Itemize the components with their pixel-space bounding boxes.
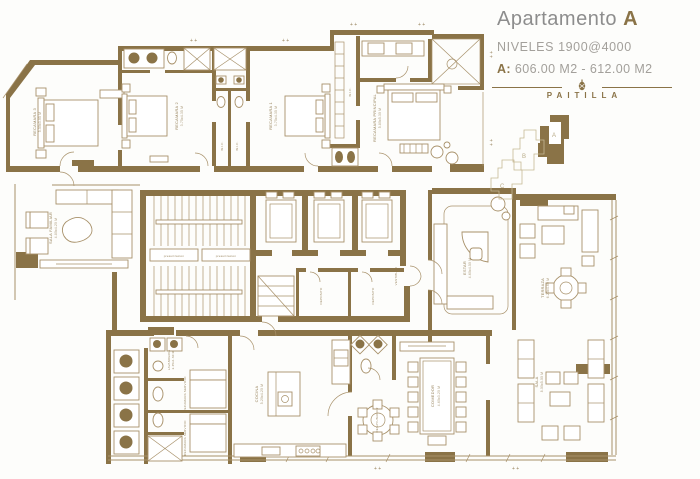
master-label: RECAMARA PRINCIPAL — [372, 93, 377, 142]
area-line: A: 606.00 M2 - 612.00 M2 — [497, 62, 693, 76]
presurizacion-label-2: presurizacion — [216, 254, 237, 258]
laundry-dims: 2.45x1.60 M — [171, 350, 175, 369]
elevator-2 — [314, 192, 344, 242]
area-label: A: — [497, 62, 511, 76]
bedroom-1: RECAMARA 1 3.75x4.35 M — [268, 84, 330, 166]
dim-marker: + + — [512, 466, 519, 472]
apartment-title: Apartamento A — [497, 8, 693, 31]
terrace-dims: 6.20x4.60 M — [546, 278, 550, 298]
brand-block: PAITILLA — [492, 78, 672, 100]
service-area: LAVANDERIA 2.45x1.60 M RECAMARA SERVICIO… — [114, 336, 226, 461]
elevator-lobby: DEPOSITO DEPOSITO VESTIBULO — [258, 266, 421, 316]
keyplan-a-label: A — [552, 133, 556, 139]
dim-marker: + + — [12, 85, 18, 92]
keyplan-b-label: B — [522, 154, 526, 160]
keyplan: A B C — [491, 115, 569, 199]
deposito-2-label: DEPOSITO — [371, 287, 375, 305]
bedroom-2: RECAMARA 2 3.75x4.35 M — [122, 84, 208, 166]
vestibulo-label: VESTIBULO — [394, 266, 398, 285]
bedroom3-dims: 5.50x3.95 M — [38, 112, 42, 132]
service-bedroom2-label: RECAMARA SERVICIO — [183, 420, 187, 456]
family-room: SALA FAMILIAR 4.80x4.20 M — [26, 185, 140, 268]
elevator-1 — [266, 192, 296, 242]
dim-marker: + + — [418, 22, 425, 28]
living-dims: 8.00x5.00 M — [540, 372, 544, 392]
dining-room: COMEDOR 4.60x3.20 M — [400, 342, 466, 445]
stair-core: presurizacion presurizacion — [150, 196, 250, 316]
floorplan-page: presurizacion presurizacion — [0, 0, 700, 479]
service-bedroom1-label: RECAMARA SERVICIO — [183, 376, 187, 412]
family-room-label: SALA FAMILIAR — [48, 212, 53, 244]
elevator-bank — [266, 192, 392, 242]
pinecone-logo-icon — [576, 78, 588, 96]
bedroom-3: RECAMARA 3 5.50x3.95 M — [32, 88, 124, 166]
family-room-dims: 4.80x4.20 M — [54, 218, 58, 238]
master-dims: 5.80x5.30 M — [378, 108, 382, 128]
dim-marker: + + — [489, 51, 495, 58]
terrace-label: TERRAZA — [540, 278, 545, 298]
wic1-label: W.I.C. — [220, 141, 224, 150]
apartment-unit: A — [623, 8, 638, 30]
wic-master-label: W.I.C. — [348, 87, 352, 96]
deposito-1-label: DEPOSITO — [319, 287, 323, 305]
kitchen-dims: 5.20x4.20 M — [260, 384, 264, 404]
dim-marker: + + — [282, 38, 289, 44]
kitchen: COCINA 5.20x4.20 M — [234, 336, 352, 457]
brand-divider — [492, 78, 672, 89]
wic2-label: W.I.C. — [235, 141, 239, 150]
breakfast-label: DESAYUNADOR — [375, 407, 379, 433]
kitchen-label: COCINA — [254, 385, 259, 402]
bedroom3-label: RECAMARA 3 — [32, 108, 37, 136]
bedroom2-dims: 3.75x4.35 M — [180, 106, 184, 126]
dining-label: COMEDOR — [430, 385, 435, 407]
den-dims: 4.60x4.50 M — [468, 258, 472, 278]
bedroom1-label: RECAMARA 1 — [268, 102, 273, 130]
terrace: TERRAZA 6.20x4.60 M — [520, 206, 598, 308]
powder-bath — [351, 336, 387, 380]
levels-subtitle: NIVELES 1900@4000 — [497, 40, 693, 54]
den: ESTAR 4.60x4.50 M — [428, 197, 510, 314]
dim-marker: + + — [190, 38, 197, 44]
elevator-3 — [362, 192, 392, 242]
living-label: SALA — [534, 376, 539, 387]
breakfast-nook: DESAYUNADOR — [358, 400, 399, 441]
bedroom1-dims: 3.75x4.35 M — [274, 106, 278, 126]
bedroom2-label: RECAMARA 2 — [174, 102, 179, 130]
header: Apartamento A NIVELES 1900@4000 A: 606.0… — [497, 8, 693, 76]
den-label: ESTAR — [462, 261, 467, 275]
living-room: SALA 8.00x5.00 M — [518, 340, 604, 440]
apartment-title-text: Apartamento — [497, 8, 617, 30]
dim-marker: + + — [374, 466, 381, 472]
area-value: 606.00 M2 - 612.00 M2 — [515, 62, 653, 76]
keyplan-c-label: C — [500, 184, 505, 190]
dining-dims: 4.60x3.20 M — [437, 386, 441, 406]
presurizacion-label-1: presurizacion — [164, 254, 185, 258]
dim-marker: + + — [350, 22, 357, 28]
dim-marker: + + — [489, 139, 495, 146]
